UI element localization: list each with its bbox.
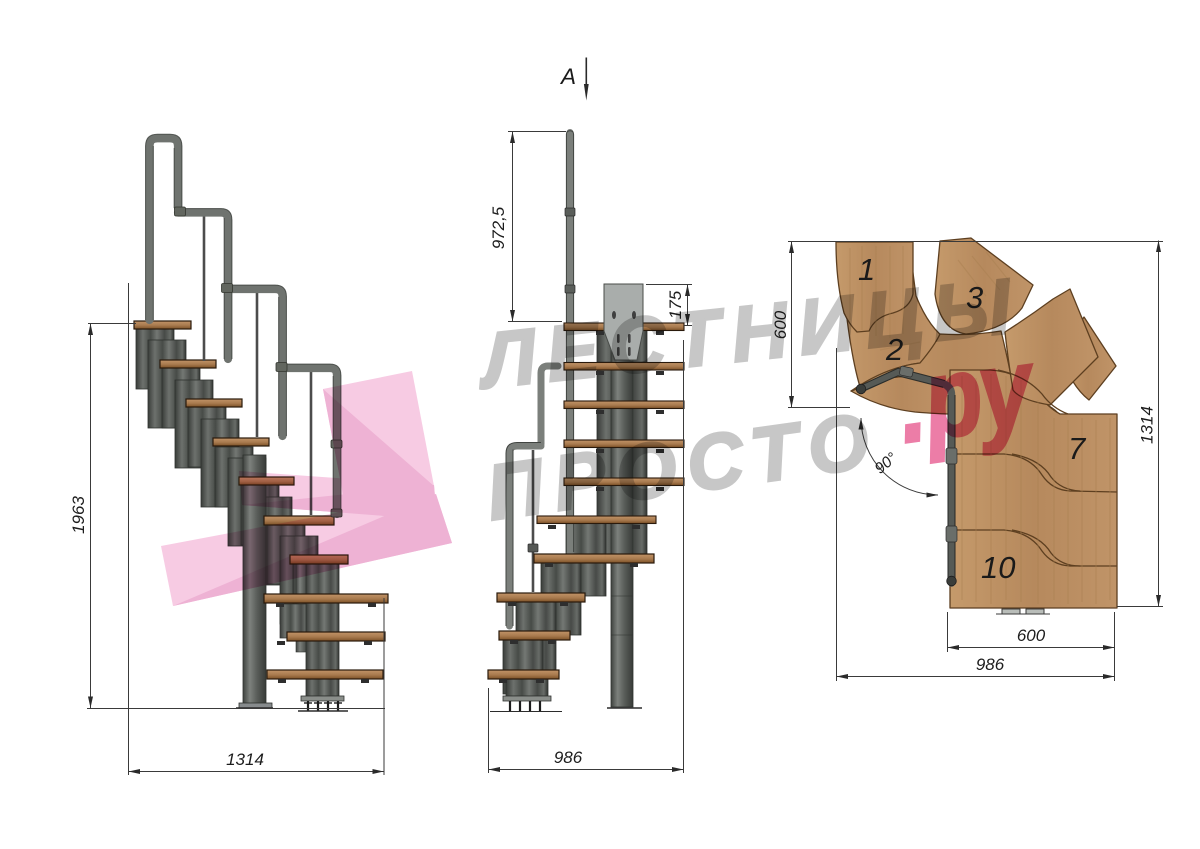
svg-text:A: A bbox=[559, 64, 576, 89]
svg-text:972,5: 972,5 bbox=[489, 206, 508, 249]
svg-text:1314: 1314 bbox=[226, 750, 264, 769]
svg-text:986: 986 bbox=[554, 748, 583, 767]
svg-text:1963: 1963 bbox=[69, 496, 88, 534]
svg-text:1314: 1314 bbox=[1138, 406, 1157, 444]
svg-text:10: 10 bbox=[981, 550, 1015, 585]
svg-text:7: 7 bbox=[1068, 431, 1087, 466]
svg-text:600: 600 bbox=[1017, 626, 1046, 645]
svg-text:986: 986 bbox=[976, 655, 1005, 674]
